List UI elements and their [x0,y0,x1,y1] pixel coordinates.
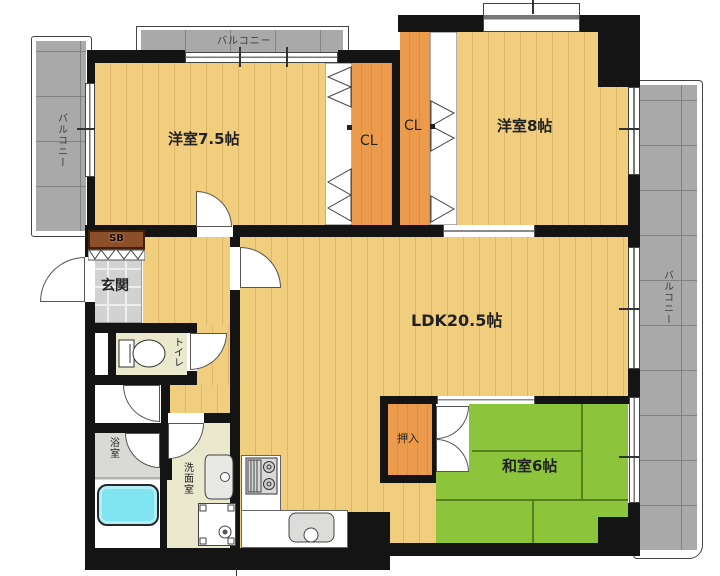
dimension-tick [239,47,241,67]
wall-segment [598,15,640,87]
washroom-label: 洗面室 [181,462,192,495]
shoe-box: SB [88,230,145,249]
dimension-tick [619,308,639,310]
door-opening [230,247,240,290]
oshiire-label: 押入 [397,433,419,445]
folding-door-icon [88,249,145,261]
wall-segment [380,475,436,483]
wall-segment [390,543,640,556]
wall-segment [628,175,640,247]
ldk-label: LDK20.5帖 [411,313,502,330]
sliding-door [437,396,535,404]
ldk-floor [388,483,432,543]
shoe-box-label: SB [109,233,124,244]
bathtub-icon [97,484,159,526]
balcony-top-label: バルコニー [217,37,272,48]
wall-segment [87,50,185,63]
wall-segment [85,548,390,570]
toilet-label: トイレ [171,337,182,367]
tatami-seam [532,501,534,543]
western-room-75-label: 洋室7.5帖 [168,132,240,148]
balcony-left-label: バルコニー [55,113,66,168]
wall-segment [348,512,390,548]
wall-segment [160,480,167,548]
western-room-8-label: 洋室8帖 [497,119,552,135]
closet-left-label: CL [360,134,378,149]
wall-segment [533,396,640,404]
dimension-tick [286,47,288,67]
wall-segment [161,413,168,423]
wall-segment [388,396,437,404]
kitchen-sink-icon [287,511,336,545]
wall-segment [87,177,95,230]
dimension-tick [236,568,237,576]
japanese-room-label: 和室6帖 [502,459,557,475]
entrance-label: 玄関 [101,279,129,294]
window [629,397,640,503]
stove-icon [245,457,278,495]
pipe-space [95,333,108,375]
dimension-tick [532,0,534,14]
wall-segment [338,50,400,63]
bathroom-label: 浴室 [107,437,118,459]
dimension-tick [619,456,639,458]
wall-segment [87,225,640,237]
entrance-door-swing [40,257,85,302]
hallway-floor [143,237,238,325]
folding-door-icon [325,63,352,225]
wall-segment [187,323,197,333]
wall-segment [230,237,240,247]
washbasin-icon [203,452,235,502]
wall-segment [87,52,95,83]
wall-segment [187,371,197,385]
wall-segment [628,369,640,397]
dimension-tick [619,128,639,130]
balcony-left: バルコニー [36,41,86,231]
bathroom-step [95,477,160,479]
wall-segment [392,63,400,225]
wall-segment [398,15,483,32]
washing-machine-icon [197,502,237,547]
toilet-icon [117,336,167,371]
tatami-seam [472,450,582,452]
door-opening [85,257,95,302]
wall-segment [380,396,388,483]
wall-segment [108,333,116,375]
window [628,87,640,175]
folding-door-icon [430,32,457,225]
tatami-seam [581,404,583,500]
window [85,83,95,177]
balcony-right: バルコニー [637,85,697,550]
floor-plan: バルコニー バルコニー バルコニー [0,0,720,576]
sliding-door [443,225,535,237]
wall-segment [87,375,197,385]
window [185,52,338,63]
wall-segment [204,413,240,423]
wall-segment [87,323,197,333]
balcony-right-label: バルコニー [661,270,672,325]
door-opening [168,413,204,423]
closet-right-label: CL [404,119,422,134]
dimension-tick [77,128,95,130]
